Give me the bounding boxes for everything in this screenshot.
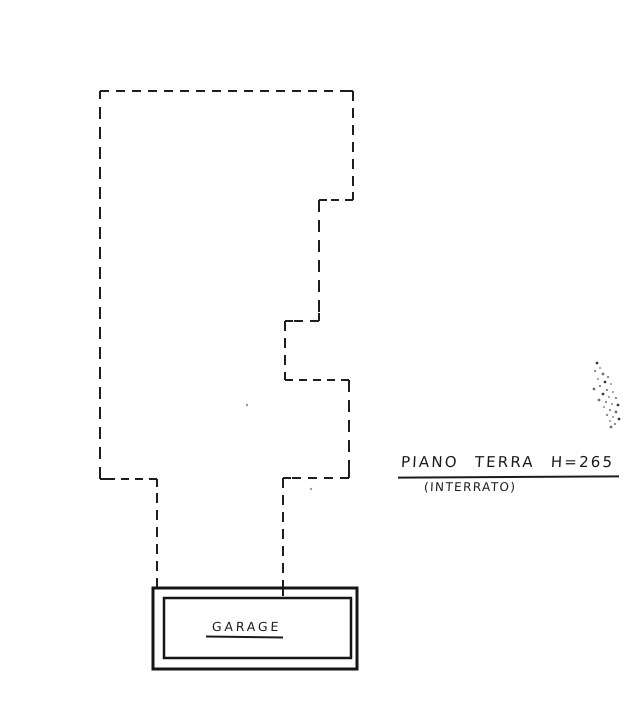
plan-subtitle: (INTERRATO) [424, 480, 517, 494]
garage-label: GARAGE [212, 619, 282, 634]
noise-speckles [593, 362, 621, 429]
floor-plan-drawing [0, 0, 642, 724]
corner-ticks [100, 91, 353, 596]
floor-plan-page: PIANO TERRA H=265 (INTERRATO) GARAGE [0, 0, 642, 724]
dashed-perimeter [100, 91, 353, 596]
plan-title: PIANO TERRA H=265 [401, 453, 615, 471]
faint-scan-dots [246, 404, 312, 490]
